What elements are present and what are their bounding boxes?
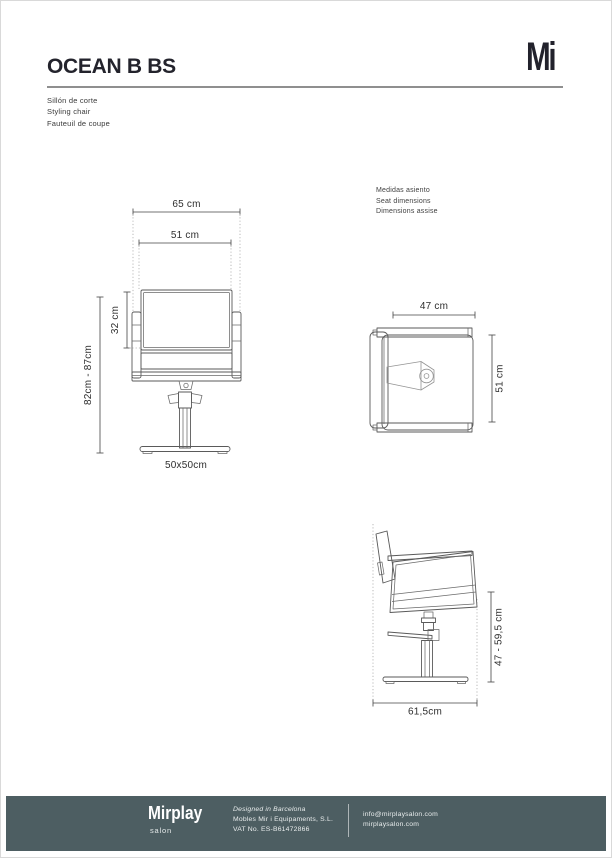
footer-designed-in: Designed in Barcelona <box>233 805 333 815</box>
top-seat-outline <box>370 328 473 432</box>
top-depth-label: 51 cm <box>495 364 506 392</box>
seat-note-fr: Dimensions assise <box>376 207 486 218</box>
footer-brand-sub: salon <box>150 826 172 835</box>
mirplay-mark-logo: Mi <box>526 40 554 74</box>
seat-dimensions-note: Medidas asiento Seat dimensions Dimensio… <box>376 186 486 218</box>
front-backrest-height-label: 32 cm <box>110 306 121 334</box>
seat-note-en: Seat dimensions <box>376 197 486 208</box>
subtitle-en: Styling chair <box>47 106 110 117</box>
front-dim-backrest-height: 32 cm <box>110 292 141 348</box>
subtitle-fr: Fauteuil de coupe <box>47 118 110 129</box>
side-dim-seat-height: 47 - 59,5 cm <box>488 592 505 682</box>
front-dim-seat-width: 51 cm <box>139 230 231 289</box>
side-dim-depth: 61,5cm <box>373 700 477 718</box>
footer-email: info@mirplaysalon.com <box>363 810 438 820</box>
top-view-drawing: 47 cm 51 cm <box>360 290 515 442</box>
footer-brand-logo: Mirplay <box>148 803 202 823</box>
product-subtitles: Sillón de corte Styling chair Fauteuil d… <box>47 95 110 129</box>
footer-website: mirplaysalon.com <box>363 820 438 830</box>
footer-divider <box>348 804 349 837</box>
seat-note-es: Medidas asiento <box>376 186 486 197</box>
top-width-label: 47 cm <box>420 301 448 312</box>
front-seat-width-label: 51 cm <box>171 230 199 241</box>
page-title: OCEAN B BS <box>47 55 176 79</box>
front-view-drawing: 65 cm 51 cm <box>80 195 260 480</box>
front-dim-total-width: 65 cm <box>133 199 240 311</box>
front-total-height-label: 82cm - 87cm <box>83 345 94 405</box>
side-view-drawing: 47 - 59,5 cm 61,5cm <box>355 515 515 723</box>
side-depth-label: 61,5cm <box>408 707 442 718</box>
subtitle-es: Sillón de corte <box>47 95 110 106</box>
front-total-width-label: 65 cm <box>172 199 200 210</box>
front-base-size-label: 50x50cm <box>165 460 207 471</box>
top-dim-depth: 51 cm <box>489 335 506 422</box>
footer-contact-block: info@mirplaysalon.com mirplaysalon.com <box>363 810 438 830</box>
top-dim-width: 47 cm <box>393 301 475 319</box>
footer-bar: Mirplay salon Designed in Barcelona Mobl… <box>6 796 606 851</box>
title-divider <box>47 86 563 88</box>
footer-company-name: Mobles Mir i Equipaments, S.L. <box>233 815 333 825</box>
front-chair-outline <box>132 290 241 454</box>
side-seat-height-label: 47 - 59,5 cm <box>494 608 505 666</box>
footer-vat-number: VAT No. ES-B61472866 <box>233 825 333 835</box>
front-dim-total-height: 82cm - 87cm <box>83 297 104 453</box>
footer-company-block: Designed in Barcelona Mobles Mir i Equip… <box>233 805 333 834</box>
side-chair-outline <box>376 531 477 684</box>
spec-sheet-page: OCEAN B BS Sillón de corte Styling chair… <box>0 0 612 858</box>
